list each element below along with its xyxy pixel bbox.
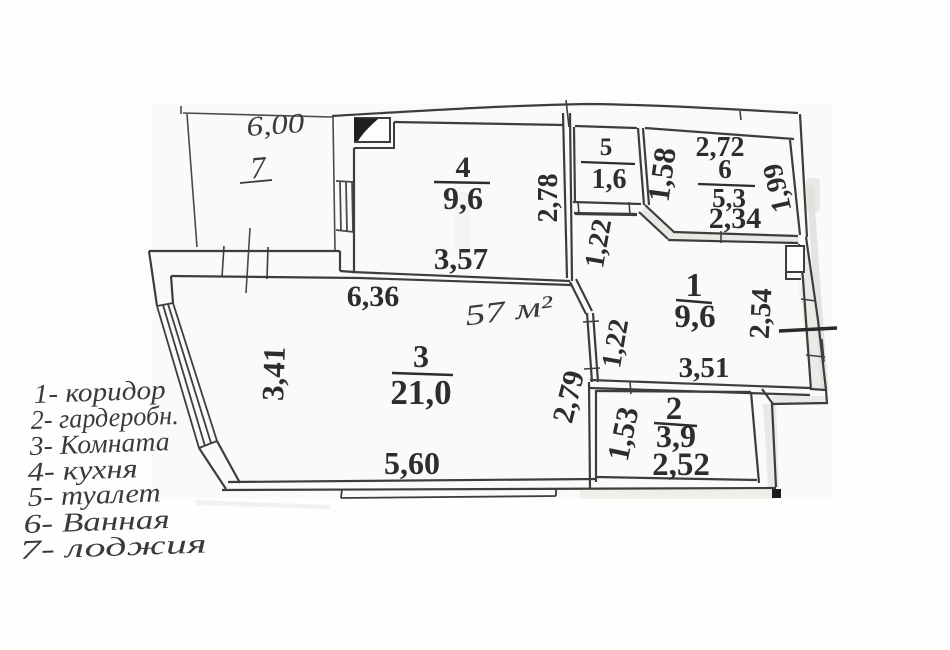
svg-text:9,6: 9,6	[443, 180, 483, 216]
svg-text:1,58: 1,58	[640, 145, 682, 204]
svg-text:9,6: 9,6	[674, 299, 715, 335]
svg-text:5: 5	[600, 134, 613, 161]
svg-text:2,52: 2,52	[652, 447, 710, 483]
svg-text:3,51: 3,51	[679, 352, 730, 384]
svg-text:6,36: 6,36	[347, 280, 400, 313]
svg-text:6: 6	[718, 154, 732, 184]
svg-text:3: 3	[413, 338, 429, 374]
svg-text:5,60: 5,60	[384, 445, 440, 481]
svg-text:21,0: 21,0	[390, 373, 451, 412]
svg-text:3,41: 3,41	[255, 346, 292, 401]
svg-text:1,6: 1,6	[592, 164, 627, 195]
svg-text:2,34: 2,34	[709, 202, 762, 235]
svg-text:3,57: 3,57	[434, 241, 488, 276]
svg-text:6,00: 6,00	[245, 108, 305, 143]
svg-text:2,54: 2,54	[744, 287, 779, 339]
svg-text:2,78: 2,78	[533, 174, 564, 223]
